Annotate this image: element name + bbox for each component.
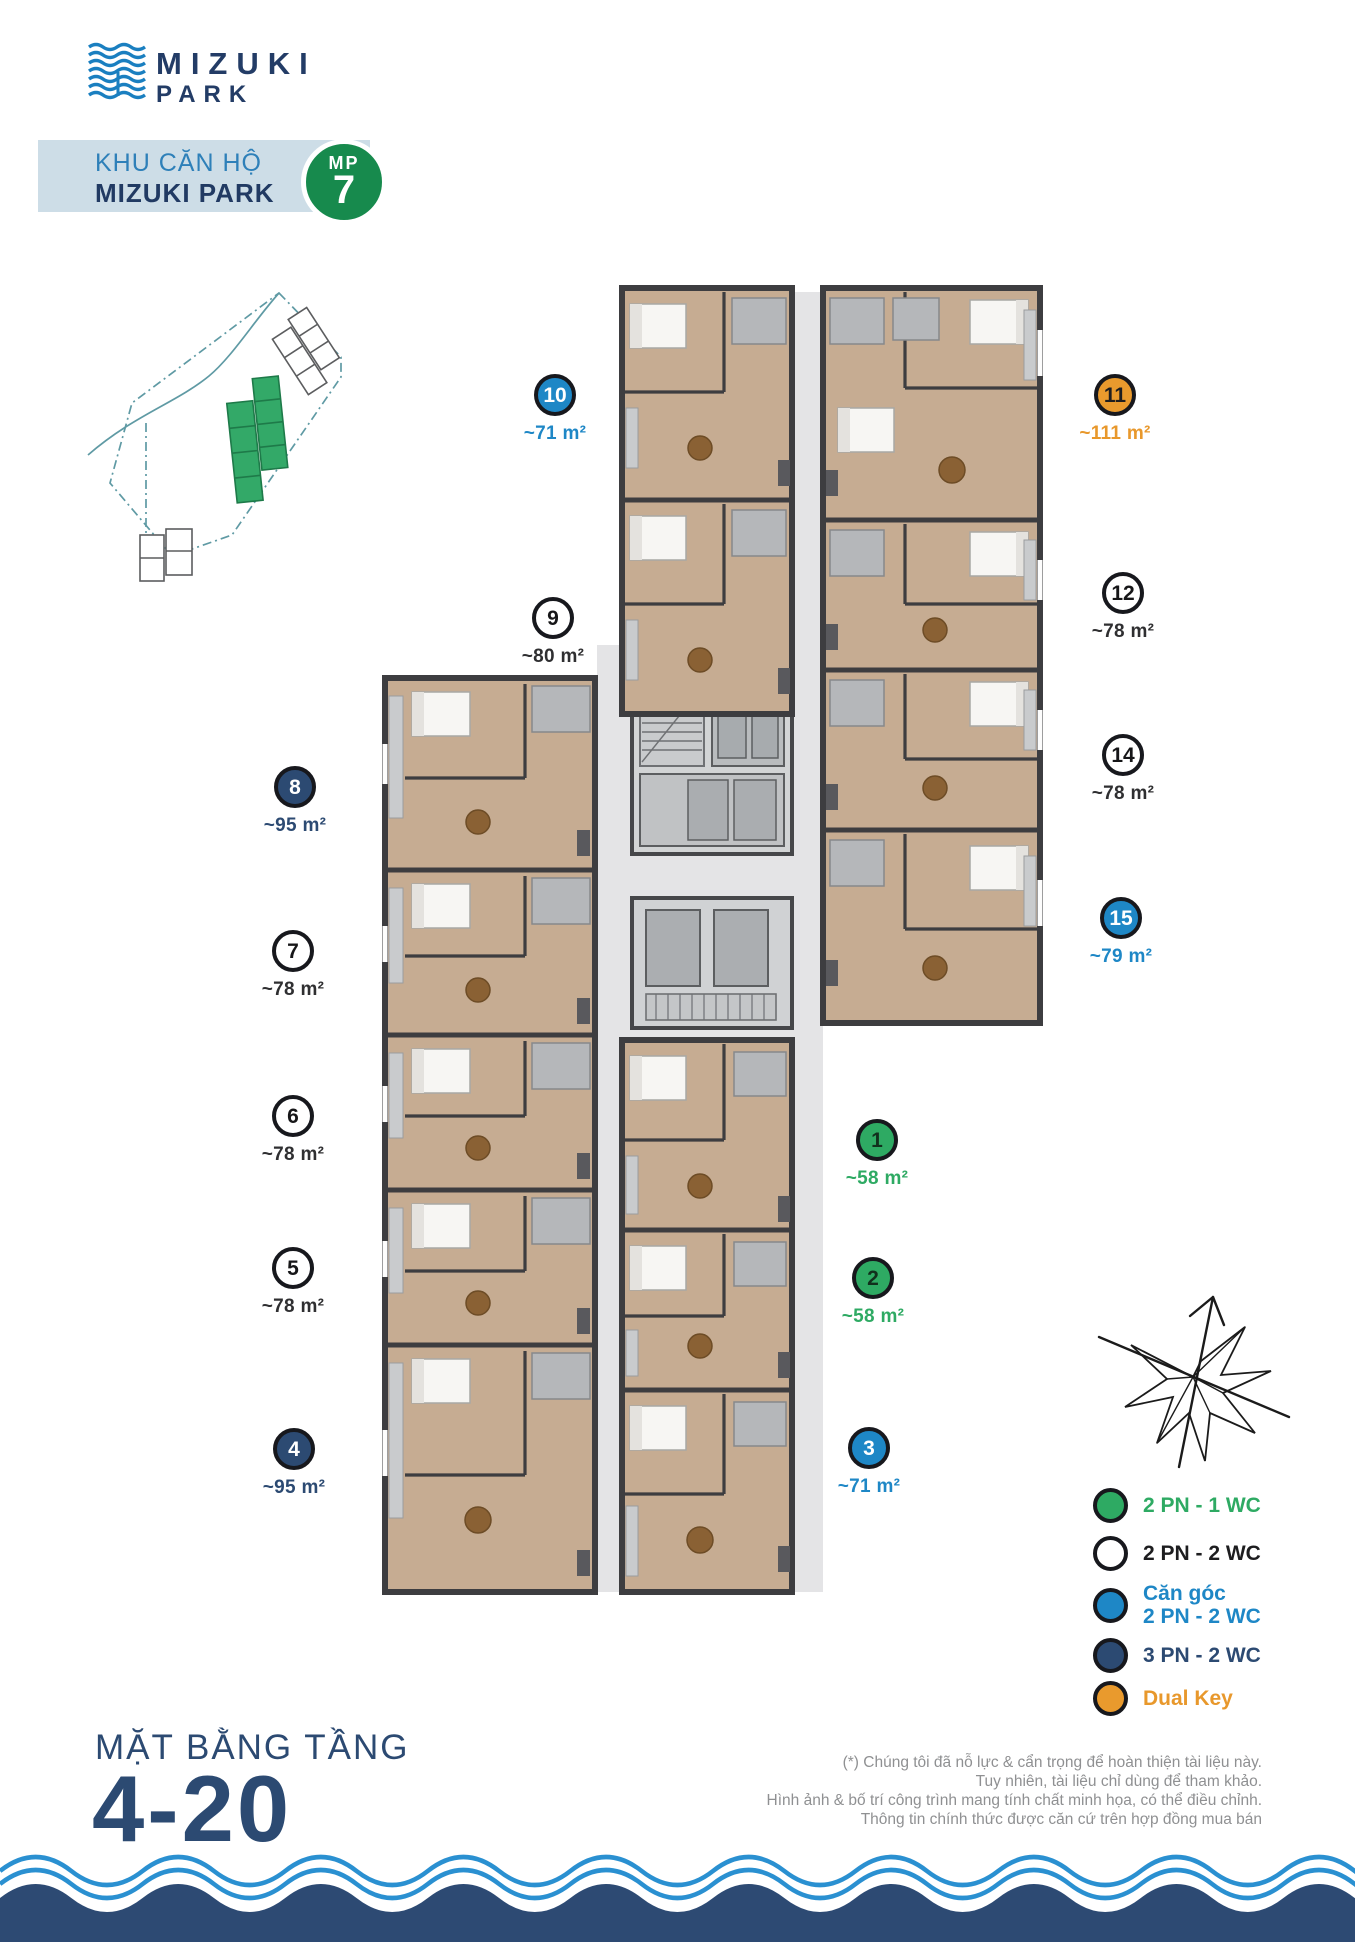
legend-swatch-navy <box>1093 1638 1128 1673</box>
unit-number-badge: 15 <box>1100 897 1142 939</box>
unit-number-badge: 14 <box>1102 734 1144 776</box>
unit-area-label: ~78 m² <box>1092 621 1155 643</box>
wing-right <box>823 288 1040 1023</box>
unit-area-label: ~78 m² <box>262 979 325 1001</box>
unit-area-label: ~80 m² <box>522 646 585 668</box>
brand-name-2: PARK <box>156 83 317 107</box>
legend-item-corner-2pn-2wc: Căn góc 2 PN - 2 WC <box>1093 1582 1261 1628</box>
block-bottom-middle <box>622 1040 792 1592</box>
unit-number-badge: 1 <box>856 1119 898 1161</box>
compass-icon <box>1093 1275 1293 1475</box>
disclaimer-line: (*) Chúng tôi đã nỗ lực & cẩn trọng để h… <box>702 1753 1262 1772</box>
unit-marker-5: 5~78 m² <box>228 1247 358 1318</box>
unit-marker-7: 7~78 m² <box>228 930 358 1001</box>
unit-number-badge: 6 <box>272 1095 314 1137</box>
legend-item-2pn-1wc: 2 PN - 1 WC <box>1093 1488 1261 1523</box>
unit-number-badge: 12 <box>1102 572 1144 614</box>
unit-area-label: ~78 m² <box>262 1144 325 1166</box>
legend-swatch-white <box>1093 1536 1128 1571</box>
site-other-building-sw <box>140 529 192 581</box>
unit-area-label: ~79 m² <box>1090 946 1153 968</box>
site-highlight-building-mp7 <box>224 376 290 503</box>
unit-area-label: ~95 m² <box>264 815 327 837</box>
unit-marker-11: 11~111 m² <box>1050 374 1180 445</box>
site-other-building-ne <box>268 307 347 394</box>
disclaimer-line: Tuy nhiên, tài liệu chỉ dùng để tham khả… <box>702 1772 1262 1791</box>
unit-area-label: ~111 m² <box>1079 423 1150 445</box>
unit-area-label: ~58 m² <box>842 1306 905 1328</box>
legend-label: 2 PN - 2 WC <box>1143 1542 1261 1565</box>
unit-area-label: ~58 m² <box>846 1168 909 1190</box>
unit-area-label: ~78 m² <box>262 1296 325 1318</box>
unit-number-badge: 8 <box>274 766 316 808</box>
unit-marker-10: 10~71 m² <box>490 374 620 445</box>
unit-marker-1: 1~58 m² <box>812 1119 942 1190</box>
header-subtitle: KHU CĂN HỘ <box>95 149 262 178</box>
unit-marker-12: 12~78 m² <box>1058 572 1188 643</box>
brand-logo: MIZUKI PARK <box>88 42 317 107</box>
legend-item-3pn-2wc: 3 PN - 2 WC <box>1093 1638 1261 1673</box>
unit-area-label: ~95 m² <box>263 1477 326 1499</box>
legend-swatch-green <box>1093 1488 1128 1523</box>
legend-item-dual-key: Dual Key <box>1093 1681 1233 1716</box>
unit-number-badge: 10 <box>534 374 576 416</box>
unit-number-badge: 7 <box>272 930 314 972</box>
legend-swatch-orange <box>1093 1681 1128 1716</box>
floor-plan <box>370 270 1060 1600</box>
unit-marker-3: 3~71 m² <box>804 1427 934 1498</box>
block-top-middle <box>622 288 792 714</box>
unit-number-badge: 3 <box>848 1427 890 1469</box>
unit-number-badge: 2 <box>852 1257 894 1299</box>
building-badge: MP 7 <box>301 139 387 225</box>
badge-number: 7 <box>333 170 355 210</box>
legend-swatch-blue <box>1093 1588 1128 1623</box>
unit-marker-8: 8~95 m² <box>230 766 360 837</box>
unit-area-label: ~71 m² <box>524 423 587 445</box>
unit-number-badge: 11 <box>1094 374 1136 416</box>
unit-marker-6: 6~78 m² <box>228 1095 358 1166</box>
wing-left <box>385 678 595 1592</box>
unit-marker-9: 9~80 m² <box>488 597 618 668</box>
unit-marker-14: 14~78 m² <box>1058 734 1188 805</box>
disclaimer-line: Hình ảnh & bố trí công trình mang tính c… <box>702 1791 1262 1810</box>
disclaimer-line: Thông tin chính thức được căn cứ trên hợ… <box>702 1810 1262 1829</box>
site-location-map <box>82 283 350 588</box>
mizuki-waves-icon <box>88 42 146 106</box>
legend-label: Dual Key <box>1143 1687 1233 1710</box>
unit-marker-2: 2~58 m² <box>808 1257 938 1328</box>
floor-range: 4-20 <box>92 1762 292 1856</box>
wave-decoration <box>0 1850 1355 1942</box>
unit-area-label: ~78 m² <box>1092 783 1155 805</box>
legend-label: 2 PN - 1 WC <box>1143 1494 1261 1517</box>
header-title: MIZUKI PARK <box>95 178 275 209</box>
legend-item-2pn-2wc: 2 PN - 2 WC <box>1093 1536 1261 1571</box>
unit-number-badge: 9 <box>532 597 574 639</box>
brand-name: MIZUKI <box>156 48 317 79</box>
unit-number-badge: 5 <box>272 1247 314 1289</box>
unit-area-label: ~71 m² <box>838 1476 901 1498</box>
brand-logo-text: MIZUKI PARK <box>156 42 317 107</box>
unit-marker-15: 15~79 m² <box>1056 897 1186 968</box>
page-root: { "brand": { "logo_line1": "MIZUKI", "lo… <box>0 0 1355 1942</box>
legend-label: Căn góc <box>1143 1582 1261 1605</box>
legend-label-line2: 2 PN - 2 WC <box>1143 1605 1261 1628</box>
disclaimer-text: (*) Chúng tôi đã nỗ lực & cẩn trọng để h… <box>702 1753 1262 1829</box>
core-stairs-lifts-lower <box>632 898 792 1028</box>
legend-label: 3 PN - 2 WC <box>1143 1644 1261 1667</box>
unit-marker-4: 4~95 m² <box>229 1428 359 1499</box>
unit-number-badge: 4 <box>273 1428 315 1470</box>
